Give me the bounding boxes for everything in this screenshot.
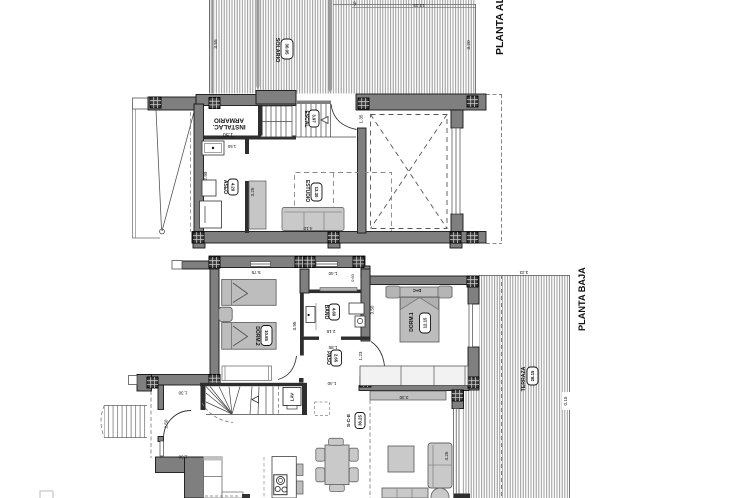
svg-text:2.50: 2.50 <box>164 419 169 428</box>
svg-text:1.85: 1.85 <box>328 345 337 350</box>
svg-text:4.20: 4.20 <box>231 183 236 192</box>
svg-text:2.15: 2.15 <box>326 329 335 334</box>
svg-text:4.25: 4.25 <box>444 451 449 460</box>
svg-text:DORM.2: DORM.2 <box>254 326 260 346</box>
svg-text:4.10: 4.10 <box>303 226 312 231</box>
svg-text:3.25: 3.25 <box>250 187 255 196</box>
svg-text:TERRAZA: TERRAZA <box>521 366 527 391</box>
svg-text:D+C: D+C <box>413 288 422 293</box>
svg-text:ARMARIO: ARMARIO <box>214 117 244 124</box>
svg-text:PLANTA BAJA: PLANTA BAJA <box>577 267 587 331</box>
svg-text:3.97: 3.97 <box>312 114 317 123</box>
svg-text:PASO: PASO <box>325 351 331 365</box>
svg-text:ASEO: ASEO <box>222 180 228 194</box>
svg-text:LAV: LAV <box>290 393 295 402</box>
svg-text:13.30: 13.30 <box>314 187 319 198</box>
svg-text:1.23: 1.23 <box>358 351 363 360</box>
svg-text:3.20: 3.20 <box>466 40 472 50</box>
svg-text:5.75: 5.75 <box>251 270 260 275</box>
svg-text:36.25: 36.25 <box>358 415 363 426</box>
svg-text:30.05: 30.05 <box>285 44 290 56</box>
svg-text:DORM.1: DORM.1 <box>409 312 415 332</box>
svg-text:1.35: 1.35 <box>359 114 364 123</box>
svg-text:3.50: 3.50 <box>370 305 375 314</box>
svg-text:1.50: 1.50 <box>227 144 236 149</box>
svg-text:2.99: 2.99 <box>203 171 208 180</box>
svg-text:PLANTA ALTA: PLANTA ALTA <box>494 0 506 55</box>
svg-text:4.60: 4.60 <box>332 308 337 317</box>
svg-text:3.55: 3.55 <box>213 39 219 49</box>
svg-text:1.50: 1.50 <box>223 131 234 137</box>
svg-text:1.40: 1.40 <box>327 381 336 386</box>
svg-text:12.15: 12.15 <box>423 317 428 328</box>
svg-text:3.30: 3.30 <box>399 395 408 400</box>
svg-text:10.85: 10.85 <box>264 330 269 341</box>
svg-text:6: 6 <box>353 0 356 6</box>
svg-text:13.15: 13.15 <box>413 3 425 8</box>
svg-text:28.15: 28.15 <box>530 370 535 381</box>
svg-text:S-C-E: S-C-E <box>346 413 352 427</box>
svg-text:3.33: 3.33 <box>519 270 528 275</box>
svg-text:INSTALAC.: INSTALAC. <box>212 123 245 130</box>
svg-text:ESCAL: ESCAL <box>303 111 309 128</box>
svg-text:SOLARIO: SOLARIO <box>274 38 280 63</box>
svg-text:ESTUDIO: ESTUDIO <box>304 180 310 202</box>
svg-text:3.95: 3.95 <box>292 321 297 330</box>
svg-text:1.40: 1.40 <box>328 271 337 276</box>
svg-text:2.65: 2.65 <box>334 354 339 363</box>
svg-text:1.30: 1.30 <box>178 455 187 460</box>
svg-text:0.60: 0.60 <box>350 273 355 282</box>
svg-text:1.30: 1.30 <box>178 391 187 396</box>
svg-text:0.15: 0.15 <box>563 396 568 405</box>
